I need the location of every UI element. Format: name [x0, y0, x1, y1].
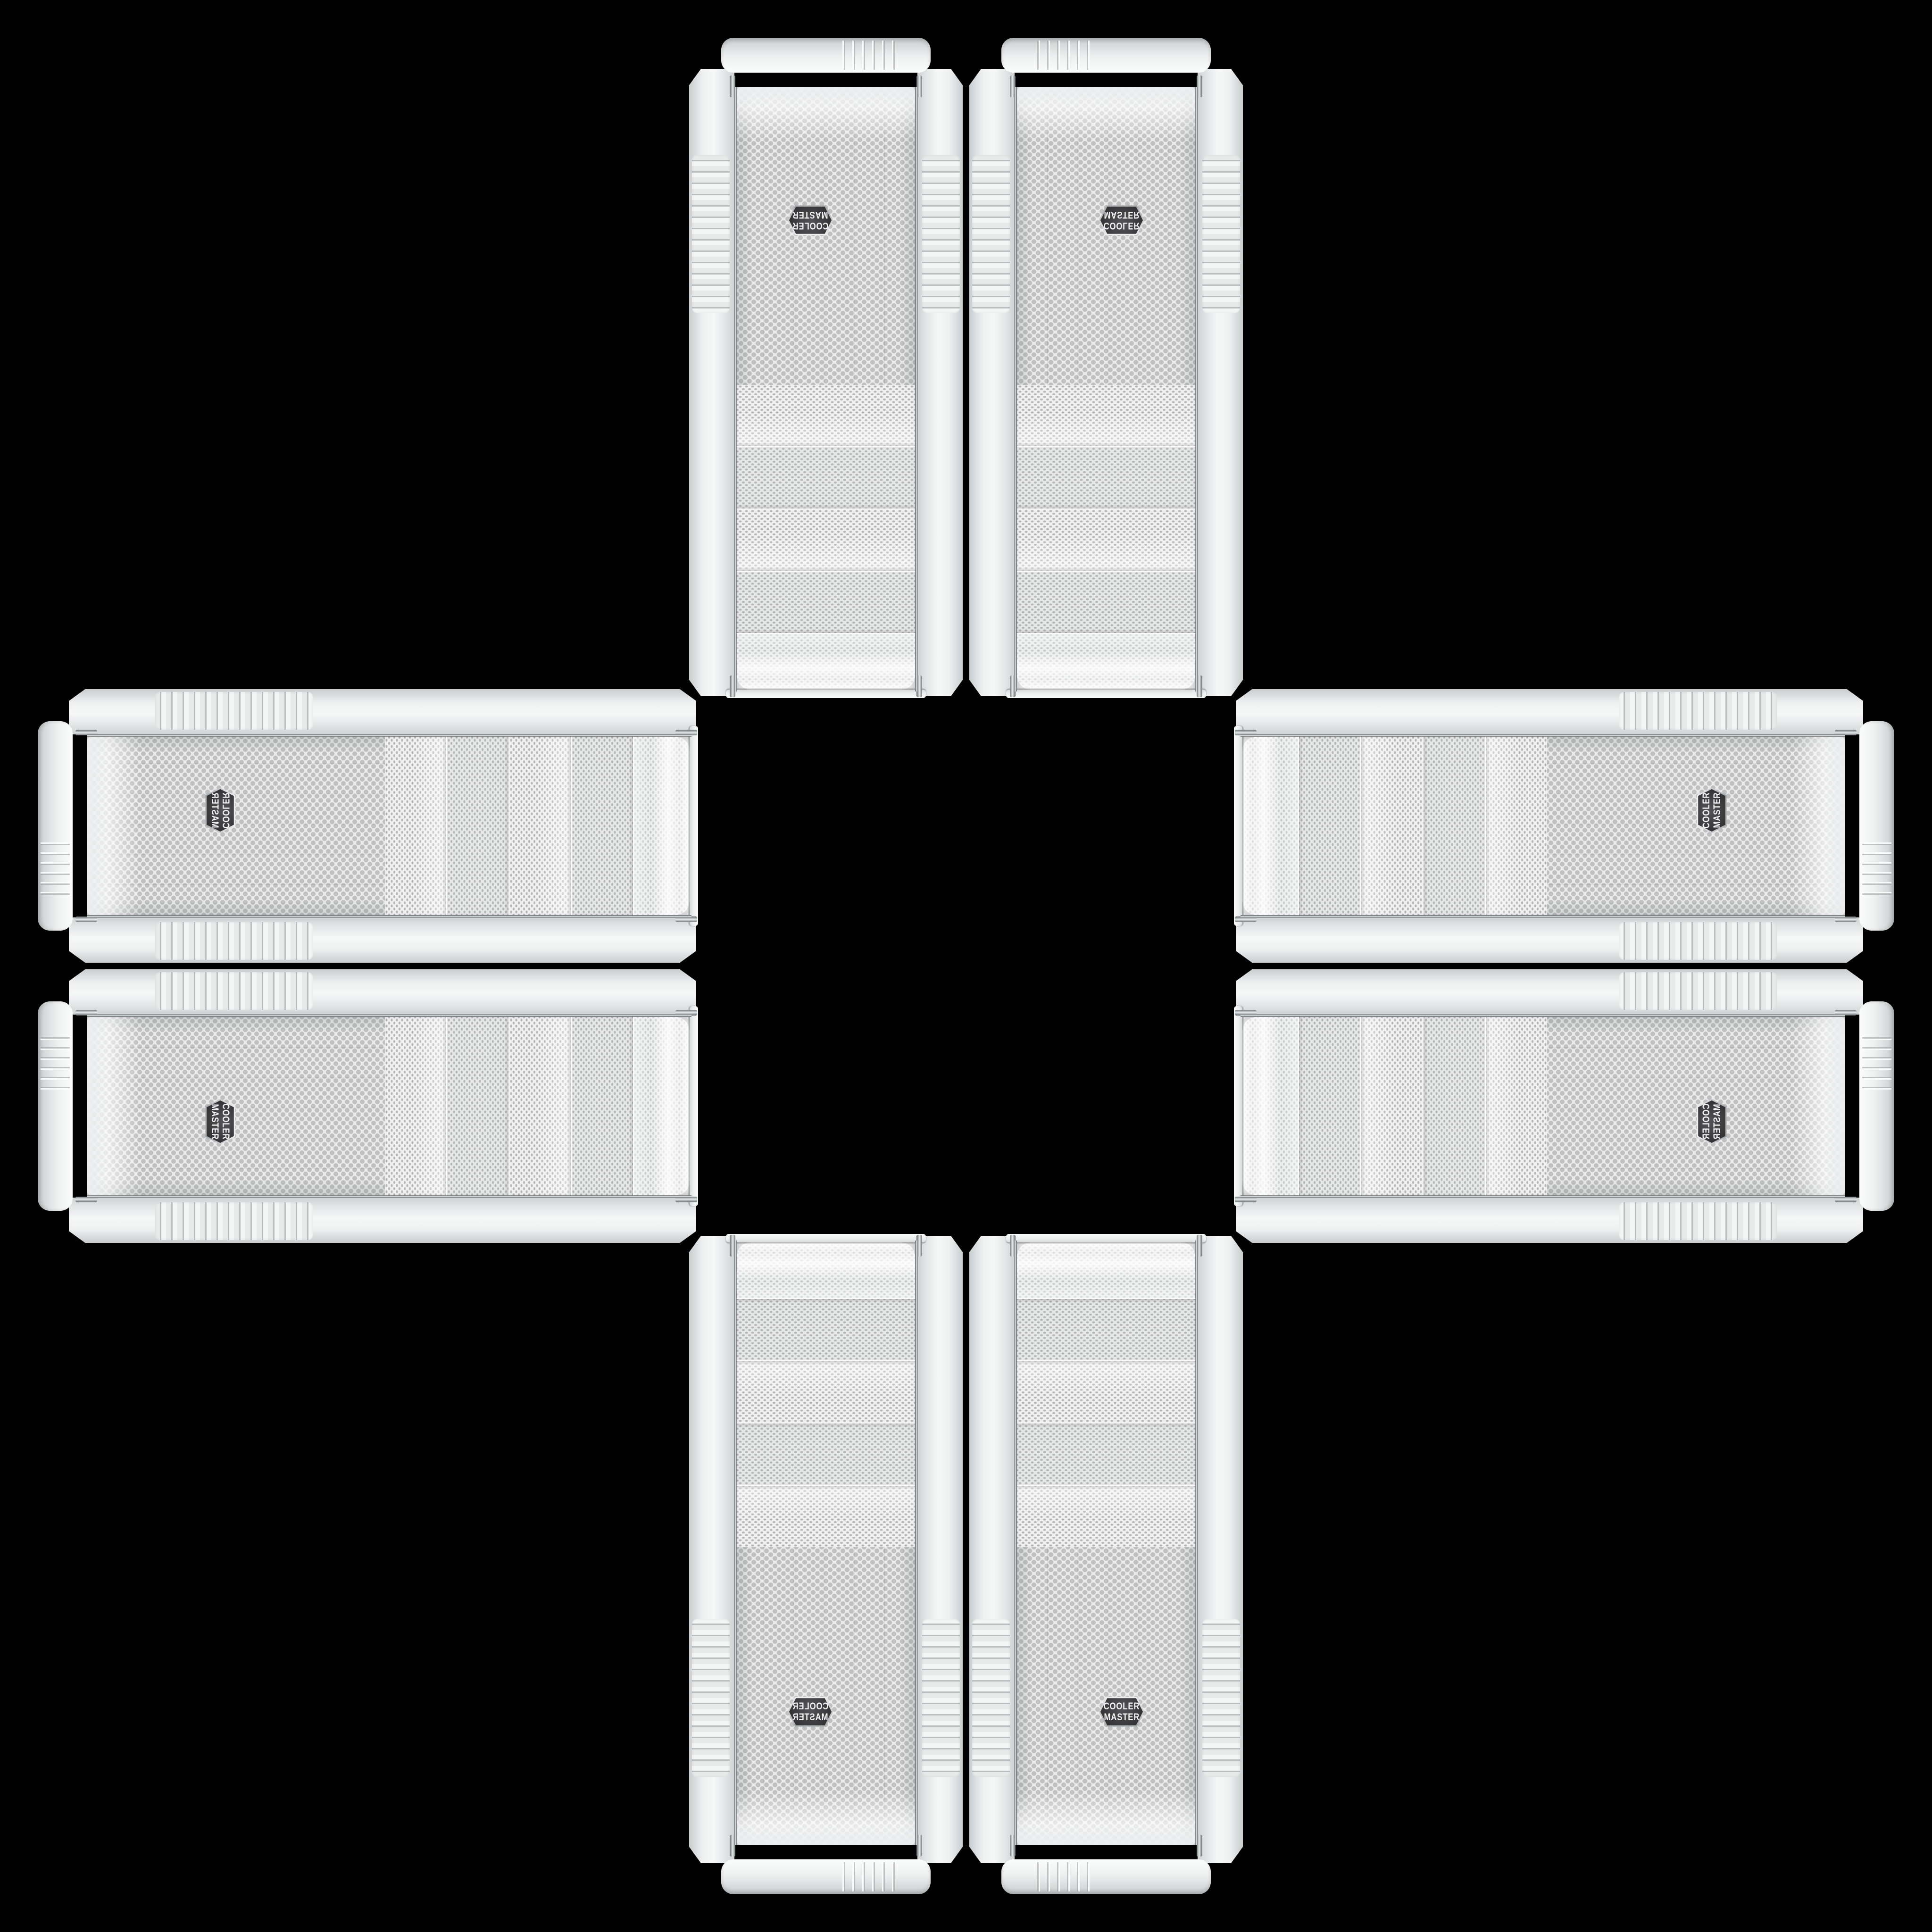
- bay-end-rim: [726, 690, 926, 698]
- rail-fins: [692, 155, 730, 313]
- drive-bay-cover: [1017, 509, 1195, 572]
- logo-text-line1: COOLER: [1701, 1104, 1712, 1140]
- bumper-cap-ribs: [836, 41, 899, 70]
- pc-case-bottom-left: COOLER MASTER: [689, 1234, 963, 1894]
- side-rail-right: [1198, 1236, 1243, 1863]
- rail-fins: [1202, 1619, 1240, 1777]
- logo-text-line1: COOLER: [792, 1701, 829, 1712]
- bumper-cap: [1859, 721, 1894, 931]
- bumper-cap: [38, 721, 73, 931]
- cooler-master-logo-face: COOLER MASTER: [1697, 789, 1727, 832]
- mesh-panel: COOLER MASTER: [1017, 1547, 1195, 1845]
- bumper-cap-ribs: [1033, 1862, 1096, 1891]
- drive-bay-cover: [1017, 572, 1195, 634]
- side-rail-right: [689, 1236, 734, 1863]
- logo-text-line2: MASTER: [1712, 792, 1723, 828]
- cooler-master-logo-face: COOLER MASTER: [789, 1697, 832, 1727]
- rail-fins: [1202, 155, 1240, 313]
- rail-fins: [155, 922, 313, 960]
- chrome-trim-right: [734, 87, 737, 691]
- drive-bay-cover: [447, 737, 509, 915]
- pc-case-right-bottom: COOLER MASTER: [1234, 969, 1894, 1243]
- side-rail-right: [1198, 69, 1243, 696]
- logo-text-line1: COOLER: [1701, 792, 1712, 829]
- mesh-wrap-top: [737, 1242, 915, 1298]
- bay-end-rim: [1006, 1234, 1206, 1242]
- pc-case-right-top: COOLER MASTER: [1234, 689, 1894, 963]
- chrome-trim-right: [1195, 87, 1198, 691]
- rail-fins: [922, 1619, 960, 1777]
- chrome-trim-right: [734, 1241, 737, 1845]
- mesh-wrap-top: [634, 737, 690, 915]
- collage-canvas: COOLER MASTER: [0, 0, 1932, 1932]
- chrome-trim-left: [915, 1241, 918, 1845]
- drive-bay-cover: [1017, 1360, 1195, 1423]
- drive-bay-cover: [1017, 385, 1195, 447]
- bay-end-rim: [1234, 1006, 1242, 1206]
- chrome-trim-right: [87, 734, 691, 737]
- pc-case-bottom-right: COOLER MASTER: [969, 1234, 1243, 1894]
- cooler-master-logo-icon: COOLER MASTER: [204, 788, 237, 833]
- bay-end-rim: [1234, 726, 1242, 926]
- drive-bay-area: [1017, 385, 1195, 634]
- bumper-cap-ribs: [1862, 1033, 1891, 1096]
- chrome-trim-left: [1014, 1241, 1017, 1845]
- bay-end-rim: [690, 726, 698, 926]
- drive-bay-cover: [1360, 1017, 1423, 1195]
- logo-text-line1: COOLER: [1104, 220, 1140, 231]
- bumper-cap: [38, 1001, 73, 1211]
- logo-text-line1: COOLER: [220, 792, 231, 829]
- drive-bay-cover: [572, 1017, 634, 1195]
- side-rail-right: [1236, 689, 1863, 734]
- drive-bay-cover: [737, 1485, 915, 1547]
- bumper-cap-ribs: [1033, 41, 1096, 70]
- side-rail-left: [69, 917, 696, 963]
- drive-bay-cover: [572, 737, 634, 915]
- drive-bay-cover: [1017, 1423, 1195, 1485]
- rail-fins: [972, 1619, 1010, 1777]
- front-panel: COOLER MASTER: [87, 1014, 691, 1198]
- chrome-trim-right: [1241, 1195, 1845, 1198]
- chrome-trim-right: [1195, 1241, 1198, 1845]
- drive-bay-area: [1298, 1017, 1547, 1195]
- mesh-wrap-top: [1017, 634, 1195, 690]
- rail-fins: [155, 692, 313, 730]
- chrome-trim-left: [87, 915, 691, 918]
- pc-case-top-left: COOLER MASTER: [689, 38, 963, 698]
- side-rail-left: [969, 69, 1015, 696]
- side-rail-left: [917, 69, 963, 696]
- rail-fins: [155, 972, 313, 1010]
- chrome-trim-left: [87, 1014, 691, 1017]
- logo-text-line2: MASTER: [792, 209, 828, 220]
- rail-fins: [1619, 1202, 1777, 1240]
- drive-bay-cover: [385, 1017, 447, 1195]
- logo-text-line2: MASTER: [209, 792, 220, 828]
- chrome-trim-right: [1241, 734, 1845, 737]
- mesh-panel: COOLER MASTER: [737, 87, 915, 385]
- drive-bay-cover: [509, 737, 572, 915]
- side-rail-left: [969, 1236, 1015, 1863]
- side-rail-right: [1236, 1198, 1863, 1243]
- logo-text-line2: MASTER: [792, 1712, 828, 1723]
- drive-bay-cover: [737, 1423, 915, 1485]
- mesh-panel: COOLER MASTER: [737, 1547, 915, 1845]
- drive-bay-area: [385, 1017, 634, 1195]
- bay-end-rim: [1006, 690, 1206, 698]
- bumper-cap-ribs: [41, 1033, 70, 1096]
- front-panel: COOLER MASTER: [734, 87, 918, 691]
- pc-case-top-right: COOLER MASTER: [969, 38, 1243, 698]
- logo-text-line1: COOLER: [220, 1104, 231, 1140]
- cooler-master-logo-icon: COOLER MASTER: [204, 1099, 237, 1144]
- drive-bay-cover: [1360, 737, 1423, 915]
- side-rail-left: [69, 969, 696, 1015]
- mesh-wrap-top: [737, 634, 915, 690]
- bumper-cap: [1001, 38, 1211, 73]
- drive-bay-cover: [1017, 1485, 1195, 1547]
- drive-bay-cover: [509, 1017, 572, 1195]
- drive-bay-cover: [1485, 1017, 1547, 1195]
- cooler-master-logo-icon: COOLER MASTER: [1099, 204, 1144, 237]
- side-rail-left: [917, 1236, 963, 1863]
- rail-fins: [972, 155, 1010, 313]
- chrome-trim-left: [1014, 87, 1017, 691]
- drive-bay-cover: [737, 385, 915, 447]
- mesh-panel: COOLER MASTER: [1547, 1017, 1845, 1195]
- bumper-cap: [721, 38, 931, 73]
- front-panel: COOLER MASTER: [1014, 1241, 1198, 1845]
- cooler-master-logo-icon: COOLER MASTER: [1099, 1695, 1144, 1728]
- rail-fins: [1619, 922, 1777, 960]
- logo-text-line1: COOLER: [792, 220, 829, 231]
- drive-bay-area: [1017, 1298, 1195, 1547]
- side-rail-left: [1236, 969, 1863, 1015]
- pc-case-left-bottom: COOLER MASTER: [38, 969, 698, 1243]
- bay-end-rim: [726, 1234, 926, 1242]
- front-panel: COOLER MASTER: [1241, 1014, 1845, 1198]
- bumper-cap: [1859, 1001, 1894, 1211]
- mesh-wrap-top: [1017, 1242, 1195, 1298]
- chrome-trim-left: [915, 87, 918, 691]
- mesh-panel: COOLER MASTER: [87, 737, 385, 915]
- chrome-trim-right: [87, 1195, 691, 1198]
- cooler-master-logo-face: COOLER MASTER: [1100, 205, 1143, 235]
- drive-bay-cover: [1485, 737, 1547, 915]
- logo-text-line2: MASTER: [209, 1104, 220, 1140]
- side-rail-left: [1236, 917, 1863, 963]
- cooler-master-logo-icon: COOLER MASTER: [788, 1695, 833, 1728]
- logo-text-line2: MASTER: [1104, 209, 1140, 220]
- bumper-cap-ribs: [1862, 836, 1891, 899]
- rail-fins: [1619, 972, 1777, 1010]
- rail-fins: [1619, 692, 1777, 730]
- cooler-master-logo-icon: COOLER MASTER: [1695, 788, 1728, 833]
- drive-bay-cover: [737, 572, 915, 634]
- drive-bay-cover: [737, 509, 915, 572]
- logo-text-line2: MASTER: [1712, 1104, 1723, 1140]
- bumper-cap-ribs: [836, 1862, 899, 1891]
- rail-fins: [922, 155, 960, 313]
- drive-bay-cover: [737, 1298, 915, 1360]
- drive-bay-cover: [737, 447, 915, 509]
- side-rail-right: [69, 689, 696, 734]
- bay-end-rim: [690, 1006, 698, 1206]
- chrome-trim-left: [1241, 1014, 1845, 1017]
- chrome-trim-left: [1241, 915, 1845, 918]
- rail-fins: [155, 1202, 313, 1240]
- drive-bay-cover: [1423, 1017, 1485, 1195]
- mesh-panel: COOLER MASTER: [87, 1017, 385, 1195]
- rail-fins: [692, 1619, 730, 1777]
- bumper-cap: [721, 1859, 931, 1894]
- cooler-master-logo-icon: COOLER MASTER: [788, 204, 833, 237]
- logo-text-line1: COOLER: [1104, 1701, 1140, 1712]
- side-rail-right: [689, 69, 734, 696]
- mesh-wrap-top: [1242, 737, 1298, 915]
- pc-case-left-top: COOLER MASTER: [38, 689, 698, 963]
- bumper-cap-ribs: [41, 836, 70, 899]
- cooler-master-logo-face: COOLER MASTER: [1697, 1100, 1727, 1143]
- front-panel: COOLER MASTER: [1014, 87, 1198, 691]
- drive-bay-cover: [447, 1017, 509, 1195]
- drive-bay-cover: [1423, 737, 1485, 915]
- cooler-master-logo-face: COOLER MASTER: [789, 205, 832, 235]
- cooler-master-logo-face: COOLER MASTER: [205, 789, 235, 832]
- logo-text-line2: MASTER: [1104, 1712, 1140, 1723]
- drive-bay-cover: [1017, 1298, 1195, 1360]
- mesh-panel: COOLER MASTER: [1017, 87, 1195, 385]
- front-panel: COOLER MASTER: [734, 1241, 918, 1845]
- drive-bay-cover: [1298, 737, 1360, 915]
- mesh-panel: COOLER MASTER: [1547, 737, 1845, 915]
- bumper-cap: [1001, 1859, 1211, 1894]
- drive-bay-cover: [385, 737, 447, 915]
- drive-bay-area: [1298, 737, 1547, 915]
- cooler-master-logo-face: COOLER MASTER: [205, 1100, 235, 1143]
- cooler-master-logo-icon: COOLER MASTER: [1695, 1099, 1728, 1144]
- drive-bay-cover: [1017, 447, 1195, 509]
- cooler-master-logo-face: COOLER MASTER: [1100, 1697, 1143, 1727]
- front-panel: COOLER MASTER: [1241, 734, 1845, 918]
- drive-bay-cover: [737, 1360, 915, 1423]
- drive-bay-cover: [1298, 1017, 1360, 1195]
- drive-bay-area: [737, 1298, 915, 1547]
- drive-bay-area: [737, 385, 915, 634]
- mesh-wrap-top: [1242, 1017, 1298, 1195]
- mesh-wrap-top: [634, 1017, 690, 1195]
- side-rail-right: [69, 1198, 696, 1243]
- drive-bay-area: [385, 737, 634, 915]
- front-panel: COOLER MASTER: [87, 734, 691, 918]
